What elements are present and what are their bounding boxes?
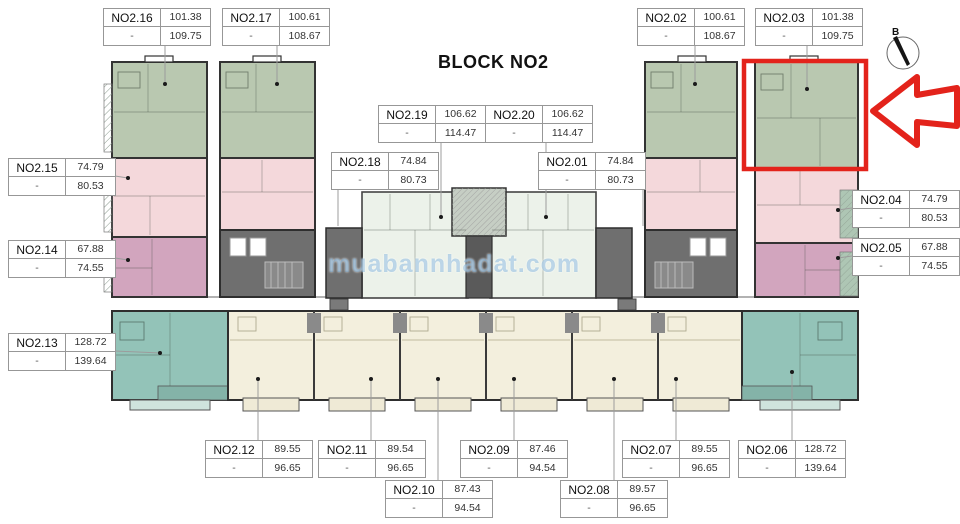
unit-label-no2-17: NO2.17100.61-108.67 [222,8,330,46]
compass-north-label: B [892,27,899,38]
unit-label-no2-02: NO2.02100.61-108.67 [637,8,745,46]
unit-label-no2-06: NO2.06128.72-139.64 [738,440,846,478]
unit-label-no2-16: NO2.16101.38-109.75 [103,8,211,46]
stair-core-left-tower [220,230,315,297]
unit-plan-no2-14 [112,237,207,297]
compass-icon: B [887,27,919,69]
unit-label-no2-03: NO2.03101.38-109.75 [755,8,863,46]
unit-plan-no2-01 [645,158,737,230]
unit-plan-no2-17 [220,62,315,158]
unit-label-no2-12: NO2.1289.55-96.65 [205,440,313,478]
unit-plan-no2-15 [112,158,207,237]
unit-label-no2-11: NO2.1189.54-96.65 [318,440,426,478]
unit-plan-no2-02 [645,62,737,158]
unit-label-no2-18: NO2.1874.84-80.73 [331,152,439,190]
watermark: muabannhadat.com [328,250,628,279]
block-title: BLOCK NO2 [438,52,549,73]
corridor [112,297,858,311]
unit-plan-no2-16 [112,62,207,158]
stair-core-right-tower [645,230,737,297]
unit-label-no2-07: NO2.0789.55-96.65 [622,440,730,478]
unit-label-no2-19: NO2.19106.62-114.47 [378,105,486,143]
unit-label-no2-04: NO2.0474.79-80.53 [852,190,960,228]
highlight-arrow-left-icon [873,77,957,145]
unit-label-no2-05: NO2.0567.88-74.55 [852,238,960,276]
unit-label-no2-20: NO2.20106.62-114.47 [485,105,593,143]
unit-label-no2-14: NO2.1467.88-74.55 [8,240,116,278]
bottom-cream-strip [228,311,742,400]
unit-label-no2-08: NO2.0889.57-96.65 [560,480,668,518]
unit-label-no2-13: NO2.13128.72-139.64 [8,333,116,371]
unit-plan-no2-18 [220,158,315,230]
unit-label-no2-09: NO2.0987.46-94.54 [460,440,568,478]
unit-label-no2-10: NO2.1087.43-94.54 [385,480,493,518]
unit-label-no2-15: NO2.1574.79-80.53 [8,158,116,196]
unit-label-no2-01: NO2.0174.84-80.73 [538,152,646,190]
floorplan-page: B BLOCK NO2 muabannhadat.com NO2.16101.3… [0,0,960,524]
